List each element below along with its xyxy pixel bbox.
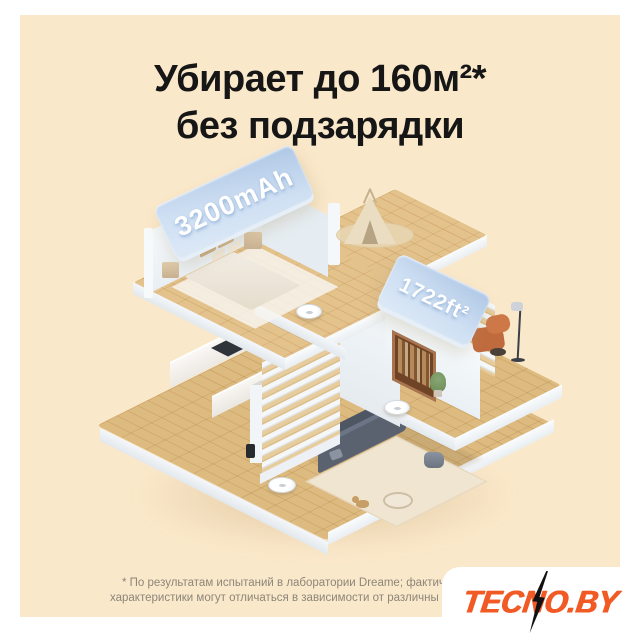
nightstand-left bbox=[162, 262, 179, 278]
footnote: * По результатам испытаний в лаборатории… bbox=[122, 577, 445, 589]
bedroom-wall-left-cap bbox=[144, 228, 153, 298]
footnote-line-2: характеристики могут отличаться в зависи… bbox=[110, 592, 439, 604]
plant-mezzanine bbox=[430, 372, 446, 392]
teepee-opening bbox=[362, 220, 378, 244]
plant-mezzanine-pot bbox=[434, 390, 442, 397]
ottoman-pouf bbox=[424, 452, 444, 468]
side-table bbox=[490, 348, 506, 356]
house-scene: 3200mAh 1722ft² bbox=[0, 0, 640, 640]
armchair-back bbox=[484, 313, 511, 336]
robot-vacuum-mezzanine bbox=[384, 400, 410, 415]
robot-vacuum-ground bbox=[268, 477, 296, 493]
footnote-line2-wrap: характеристики могут отличаться в зависи… bbox=[110, 592, 439, 604]
charging-dock bbox=[246, 444, 255, 458]
footnote-line-1: * По результатам испытаний в лаборатории… bbox=[122, 577, 445, 589]
floor-lamp-base bbox=[511, 358, 525, 362]
nightstand-right bbox=[244, 232, 262, 249]
watermark-badge: TECNO.BY bbox=[442, 567, 640, 638]
dog-head bbox=[352, 496, 359, 503]
product-image: Убирает до 160м²* без подзарядки bbox=[0, 0, 640, 640]
robot-vacuum-bedroom bbox=[296, 304, 322, 319]
floor-lamp-head bbox=[511, 302, 523, 311]
floor-lamp-pole bbox=[517, 308, 522, 360]
coffee-table bbox=[383, 492, 413, 509]
